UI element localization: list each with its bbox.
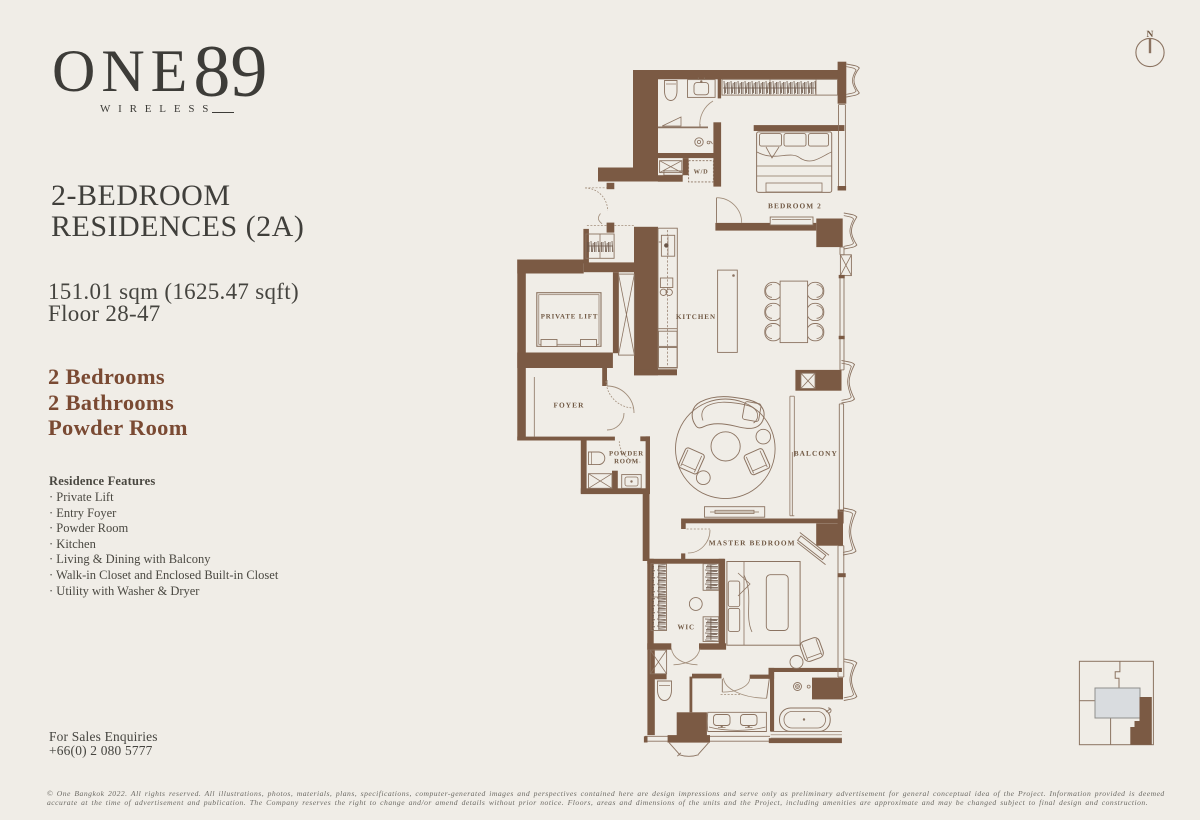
svg-text:W/D: W/D bbox=[694, 168, 709, 175]
svg-text:BALCONY: BALCONY bbox=[794, 449, 838, 458]
svg-text:PRIVATE LIFT: PRIVATE LIFT bbox=[541, 313, 599, 320]
svg-text:BEDROOM 2: BEDROOM 2 bbox=[768, 201, 822, 210]
svg-text:MASTER BEDROOM: MASTER BEDROOM bbox=[709, 538, 796, 547]
svg-text:WIC: WIC bbox=[677, 623, 695, 631]
svg-text:FOYER: FOYER bbox=[553, 400, 584, 409]
svg-text:ROOM: ROOM bbox=[614, 458, 639, 465]
svg-text:POWDER: POWDER bbox=[609, 450, 644, 457]
svg-text:N: N bbox=[1147, 30, 1154, 40]
svg-text:KITCHEN: KITCHEN bbox=[676, 313, 716, 321]
